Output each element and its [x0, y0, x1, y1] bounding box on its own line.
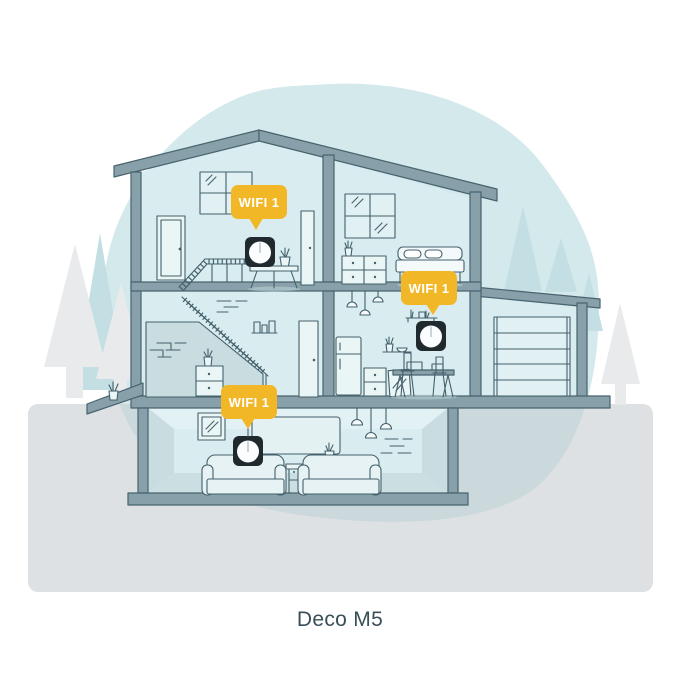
bedroom-window	[345, 194, 395, 238]
tree-gray-right	[601, 303, 640, 384]
attic-closet-door	[301, 211, 314, 285]
garage	[494, 317, 570, 396]
deco-unit-basement[interactable]	[233, 436, 263, 466]
badge-label: WIFI 1	[239, 195, 280, 210]
sofa-right	[298, 455, 381, 495]
caption-deco-m5: Deco M5	[0, 608, 680, 632]
wall-right	[470, 192, 481, 397]
badge-label: WIFI 1	[409, 281, 450, 296]
house-illustration: WIFI 1 WIFI 1 WIFI 1	[0, 0, 680, 680]
garage-wall-right	[577, 303, 587, 397]
basement-picture	[198, 413, 225, 440]
basement-slab	[128, 493, 468, 505]
fridge	[336, 337, 361, 395]
badge-label: WIFI 1	[229, 395, 270, 410]
deco-unit-kitchen[interactable]	[416, 321, 446, 351]
kitchen-cabinet	[364, 368, 386, 396]
attic-door	[157, 216, 185, 280]
tree-gray-right-trunk	[615, 384, 626, 405]
basement-wall-left-outer	[138, 408, 148, 493]
ground-slab	[131, 396, 610, 408]
deco-placement-illustration: WIFI 1 WIFI 1 WIFI 1 Deco M5	[0, 0, 680, 680]
garage-door	[494, 317, 570, 396]
wall-interior	[323, 155, 334, 397]
deco-unit-attic[interactable]	[245, 237, 275, 267]
basement-wall-right-outer	[448, 408, 458, 493]
living-room-door	[299, 321, 318, 397]
tree-gray-left-big-trunk	[66, 367, 83, 398]
